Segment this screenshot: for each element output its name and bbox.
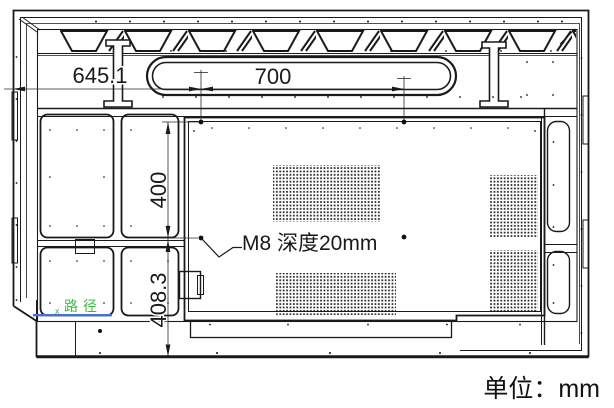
dimension-645-1: 645.1	[72, 63, 127, 88]
cad-path-highlight	[33, 314, 112, 316]
speaker-grid-upper	[273, 165, 380, 222]
unit-label: 单位：mm	[483, 375, 600, 403]
central-panel	[180, 118, 545, 338]
vesa-hole-top-right	[402, 120, 407, 125]
chamfer-top-left	[19, 17, 40, 32]
vent-grid-right-upper	[490, 175, 538, 237]
horizontal-rail	[38, 109, 578, 117]
right-slot-upper	[548, 122, 570, 232]
bottom-tray	[191, 321, 452, 338]
screw-row-handle-band	[162, 96, 522, 98]
dimension-408-3: 408.3	[146, 272, 171, 327]
technical-drawing-page: 645.1 700 400 408.3 M8 深度20mm 路径 x 单位：mm	[0, 0, 614, 408]
mount-note-text: M8 深度20mm	[242, 232, 377, 255]
speaker-grid-lower	[276, 273, 396, 315]
cad-path-tag: 路径 x	[33, 298, 112, 316]
screw-row-central-top	[211, 127, 509, 129]
vent-grid-right-lower	[490, 250, 538, 313]
vesa-hole-bottom-right	[402, 235, 407, 240]
display-rear-panel-diagram: 645.1 700 400 408.3 M8 深度20mm 路径 x 单位：mm	[0, 0, 614, 408]
dimension-400: 400	[146, 172, 171, 209]
vesa-hole-top-left	[199, 120, 204, 125]
right-column	[542, 109, 578, 346]
cad-tag-text: 路径	[64, 298, 102, 314]
mount-note-leader: M8 深度20mm	[202, 232, 406, 257]
dimension-700: 700	[255, 64, 292, 89]
screw-row-top	[95, 21, 563, 23]
cad-tag-marker: x	[55, 306, 60, 316]
right-slot-lower	[548, 252, 570, 314]
